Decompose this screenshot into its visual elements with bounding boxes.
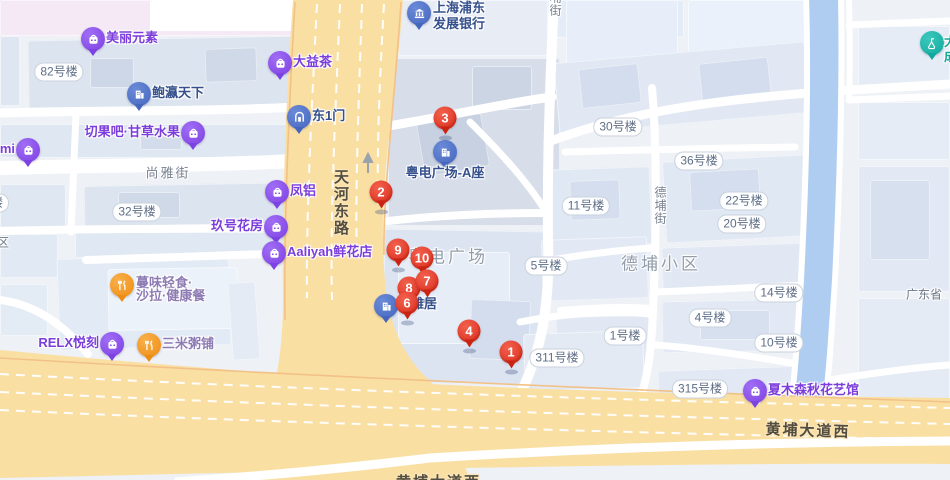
area-label: 德埔小区: [621, 250, 701, 275]
building-icon: [439, 146, 452, 159]
poi-label-line: RELX悦刻: [38, 336, 99, 350]
poi-pin-purple[interactable]: [181, 121, 205, 145]
road-name-label: 黄埔大道西: [765, 418, 851, 442]
poi-label[interactable]: 切果吧·甘草水果: [85, 125, 180, 139]
marker-number: 2: [377, 185, 384, 200]
poi-pin-blue[interactable]: [287, 105, 311, 129]
bag-icon: [87, 33, 100, 46]
poi-label-line: 成: [944, 49, 950, 64]
poi-pin-purple[interactable]: [265, 180, 289, 204]
building-number-label: 82号楼: [34, 63, 83, 82]
building-number-label: 楼: [0, 194, 9, 213]
food-icon: [116, 279, 129, 292]
building-number-label: 32号楼: [112, 203, 161, 222]
building-number-label: 4号楼: [689, 309, 732, 328]
partial-map-label: 小区: [0, 234, 9, 251]
poi-label[interactable]: Aaliyah鲜花店: [287, 245, 372, 259]
building-number-label: 20号楼: [717, 215, 766, 234]
marker-number: 3: [441, 111, 448, 126]
road-name-label: 天河东路: [330, 169, 351, 237]
poi-pin-blue[interactable]: [374, 294, 398, 318]
poi-pin-purple[interactable]: [264, 215, 288, 239]
poi-label-line: 粤电广场-A座: [406, 166, 485, 180]
bag-icon: [106, 338, 119, 351]
poi-label-line: 凤铝: [290, 184, 316, 198]
building-number-label: 5号楼: [525, 257, 568, 276]
map-marker-9[interactable]: 9: [387, 239, 410, 262]
poi-pin-purple[interactable]: [16, 138, 40, 162]
bag-icon: [749, 385, 762, 398]
poi-label[interactable]: 鲍瀛天下: [152, 86, 204, 100]
poi-pin-blue[interactable]: [127, 82, 151, 106]
building-number-label: 1号楼: [604, 327, 647, 346]
bag-icon: [271, 186, 284, 199]
poi-label[interactable]: 夏木森秋花艺馆: [768, 383, 859, 397]
poi-label[interactable]: 东1门: [312, 109, 345, 123]
poi-pin-orange[interactable]: [110, 273, 134, 297]
map-marker-4[interactable]: 4: [458, 320, 481, 343]
map-marker-10[interactable]: 10: [411, 247, 434, 270]
map-marker-3[interactable]: 3: [434, 107, 457, 130]
poi-label-line: 发展银行: [433, 16, 485, 32]
food-icon: [143, 339, 156, 352]
poi-pin-blue[interactable]: [433, 140, 457, 164]
building-number-label: 315号楼: [672, 380, 728, 399]
poi-label-line: 大: [944, 34, 950, 49]
poi-label[interactable]: 蔓味轻食·沙拉·健康餐: [136, 276, 205, 302]
poi-label[interactable]: 三米粥铺: [162, 337, 214, 351]
poi-pin-orange[interactable]: [137, 333, 161, 357]
marker-number: 4: [465, 324, 472, 339]
building-number-label: 14号楼: [754, 284, 803, 303]
marker-number: 6: [403, 296, 410, 311]
street-label: 德埔街: [652, 186, 669, 225]
poi-label[interactable]: 玖号花房: [211, 219, 263, 233]
poi-label-line: 大益茶: [293, 55, 332, 69]
poi-pin-purple[interactable]: [268, 51, 292, 75]
poi-label-line: 切果吧·甘草水果: [85, 125, 180, 139]
poi-pin-teal[interactable]: [920, 31, 944, 55]
road-name-label: 黄埔大道西: [396, 471, 481, 480]
poi-label[interactable]: 上海浦东发展银行: [433, 0, 485, 32]
building-number-label: 311号楼: [529, 349, 584, 368]
building-number-label: 30号楼: [593, 118, 642, 137]
poi-label[interactable]: 美丽元素: [106, 31, 158, 45]
poi-label-line: 三米粥铺: [162, 337, 214, 351]
street-label: 埔街: [547, 0, 564, 17]
bag-icon: [274, 57, 287, 70]
bag-icon: [268, 247, 281, 260]
marker-number: 10: [415, 251, 429, 266]
building-icon: [380, 300, 393, 313]
map-marker-2[interactable]: 2: [370, 181, 393, 204]
poi-label[interactable]: 大成: [944, 34, 950, 64]
map-canvas[interactable]: 粤电广场德埔小区尚雅街德埔街埔街天河东路黄埔大道西黄埔大道西82号楼32号楼30…: [0, 0, 950, 480]
building-number-label: 11号楼: [562, 197, 610, 216]
map-marker-7[interactable]: 7: [416, 270, 439, 293]
poi-label-line: 鲍瀛天下: [152, 86, 204, 100]
poi-label[interactable]: 大益茶: [293, 55, 332, 69]
partial-map-label: 广东省: [906, 286, 942, 303]
label-layer: 粤电广场德埔小区尚雅街德埔街埔街天河东路黄埔大道西黄埔大道西82号楼32号楼30…: [0, 0, 950, 480]
gate-icon: [293, 111, 306, 124]
marker-number: 9: [394, 243, 401, 258]
poi-label[interactable]: 凤铝: [290, 184, 316, 198]
bag-icon: [187, 127, 200, 140]
bag-icon: [22, 144, 35, 157]
poi-label[interactable]: 粤电广场-A座: [406, 166, 485, 180]
poi-pin-purple[interactable]: [81, 27, 105, 51]
building-icon: [133, 88, 146, 101]
map-marker-1[interactable]: 1: [500, 341, 523, 364]
poi-pin-purple[interactable]: [100, 332, 124, 356]
building-number-label: 36号楼: [674, 152, 723, 171]
street-label: 尚雅街: [145, 163, 190, 182]
flask-icon: [926, 37, 939, 50]
poi-pin-purple[interactable]: [262, 241, 286, 265]
poi-label[interactable]: RELX悦刻: [38, 336, 99, 350]
poi-label-line: Aaliyah鲜花店: [287, 245, 372, 259]
marker-number: 1: [507, 345, 514, 360]
poi-label-line: 东1门: [312, 109, 345, 123]
bank-icon: [413, 7, 426, 20]
poi-label-line: 沙拉·健康餐: [136, 289, 205, 302]
poi-pin-purple[interactable]: [743, 379, 767, 403]
bag-icon: [270, 221, 283, 234]
poi-label-line: mi: [0, 142, 15, 156]
poi-label[interactable]: mi: [0, 142, 15, 156]
map-marker-6[interactable]: 6: [396, 292, 419, 315]
poi-label-line: 夏木森秋花艺馆: [768, 383, 859, 397]
poi-label-line: 美丽元素: [106, 31, 158, 45]
poi-label-line: 玖号花房: [211, 219, 263, 233]
building-number-label: 10号楼: [754, 334, 803, 353]
poi-pin-blue[interactable]: [407, 1, 431, 25]
building-number-label: 22号楼: [719, 192, 768, 211]
marker-number: 7: [423, 274, 430, 289]
poi-label-line: 上海浦东: [433, 0, 485, 16]
